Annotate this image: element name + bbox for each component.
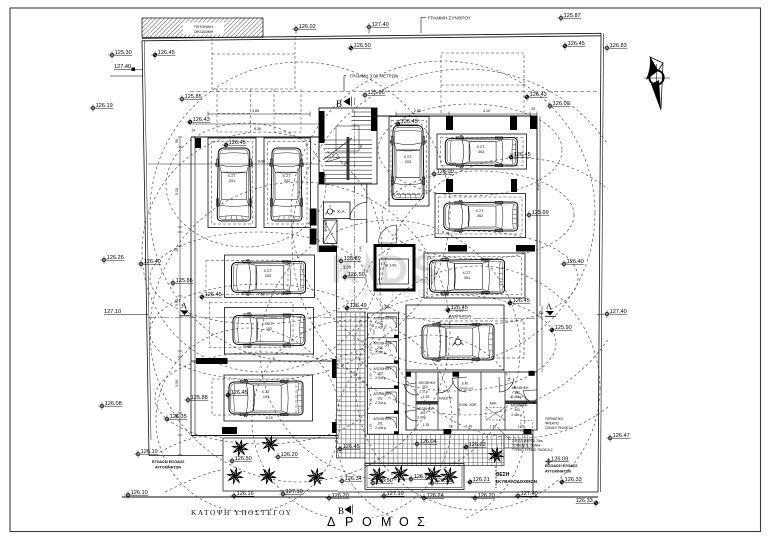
svg-text:201: 201 — [229, 179, 235, 183]
svg-text:202: 202 — [377, 321, 383, 325]
svg-text:Σ: Σ — [417, 515, 425, 529]
svg-text:24: 24 — [192, 129, 196, 133]
svg-text:6.15: 6.15 — [266, 416, 273, 420]
svg-text:101: 101 — [377, 422, 383, 426]
svg-text:2.43τ.μ.: 2.43τ.μ. — [375, 326, 387, 330]
svg-text:2.85: 2.85 — [414, 109, 421, 113]
svg-text:102: 102 — [266, 327, 272, 331]
svg-text:ΣΧΕΔΙΟ 7540007-4: ΣΧΕΔΙΟ 7540007-4 — [545, 426, 573, 430]
svg-text:2.10: 2.10 — [457, 408, 461, 414]
svg-text:Χ.ΣΤ.: Χ.ΣΤ. — [476, 209, 485, 213]
svg-text:1.20: 1.20 — [369, 348, 373, 354]
svg-text:1.35: 1.35 — [490, 425, 497, 429]
svg-text:2.48τ.μ.: 2.48τ.μ. — [511, 395, 523, 399]
svg-text:1.20: 1.20 — [369, 398, 373, 404]
svg-text:1.25: 1.25 — [518, 425, 525, 429]
svg-text:4.10: 4.10 — [483, 109, 490, 113]
svg-text:Χ.ΣΤ.: Χ.ΣΤ. — [264, 269, 273, 273]
svg-text:Χ.ΣΤ.: Χ.ΣΤ. — [265, 322, 274, 326]
svg-text:103: 103 — [265, 274, 271, 278]
svg-text:301: 301 — [464, 276, 470, 280]
svg-text:1.20: 1.20 — [369, 323, 373, 329]
svg-text:A: A — [181, 301, 187, 310]
svg-text:Χ.ΣΤ.: Χ.ΣΤ. — [228, 174, 237, 178]
svg-text:ΘΕΣΗ: ΘΕΣΗ — [496, 472, 510, 478]
svg-text:Ο: Ο — [362, 515, 372, 529]
svg-text:ΤΣΙΜΕΝΤΟ, ΤΑΙΝΙΑ: ΤΣΙΜΕΝΤΟ, ΤΑΙΝΙΑ — [512, 444, 541, 448]
svg-text:50: 50 — [175, 139, 179, 143]
svg-text:6.20: 6.20 — [536, 183, 540, 190]
svg-text:2.45: 2.45 — [341, 161, 348, 165]
svg-text:50: 50 — [359, 144, 363, 148]
svg-text:1.40: 1.40 — [466, 425, 473, 429]
svg-text:2.3τ.μ.: 2.3τ.μ. — [419, 390, 429, 394]
svg-text:Ρ: Ρ — [345, 515, 353, 529]
svg-text:.70: .70 — [448, 425, 453, 429]
svg-text:B: B — [336, 99, 342, 109]
svg-text:ΟΙΚΟΔΟΜΗ: ΟΙΚΟΔΟΜΗ — [194, 30, 214, 34]
svg-text:2.34τ.μ.: 2.34τ.μ. — [375, 350, 387, 354]
svg-text:ΤΕΡΜΑΤΙΚΟ: ΤΕΡΜΑΤΙΚΟ — [545, 417, 564, 421]
svg-text:5.25: 5.25 — [175, 188, 179, 195]
svg-text:ΓΡΑΜΜΗ ΣΥΝΟΡΟΥ: ΓΡΑΜΜΗ ΣΥΝΟΡΟΥ — [428, 16, 471, 21]
svg-text:1.80: 1.80 — [343, 265, 352, 270]
svg-text:6.35: 6.35 — [539, 311, 543, 318]
svg-text:ΣΚΥΒΑΛΟΔΟΧΕΙΩΝ: ΣΚΥΒΑΛΟΔΟΧΕΙΩΝ — [496, 479, 537, 484]
svg-text:6.36: 6.36 — [254, 127, 261, 131]
svg-text:302: 302 — [477, 214, 483, 218]
svg-text:2 Φ110, ΒΑΘΟΣ 75εκ.: 2 Φ110, ΒΑΘΟΣ 75εκ. — [512, 439, 544, 443]
svg-text:Χ.ΣΤ.: Χ.ΣΤ. — [404, 155, 413, 159]
svg-text:ΕΙΣΟΔΟΣ/ ΕΞΟΔΟΣ: ΕΙΣΟΔΟΣ/ ΕΞΟΔΟΣ — [545, 464, 578, 468]
svg-text:1.25: 1.25 — [423, 423, 430, 427]
svg-text:303: 303 — [514, 408, 520, 412]
svg-text:303: 303 — [478, 150, 484, 154]
svg-text:7.50: 7.50 — [258, 293, 265, 297]
svg-text:ΓΕΙΤΟΝΙΚΗ: ΓΕΙΤΟΝΙΚΗ — [194, 25, 213, 29]
svg-text:ΑΝΑΠΗΡΩΝ: ΑΝΑΠΗΡΩΝ — [448, 314, 472, 319]
svg-text:Χ.Α.: Χ.Α. — [337, 209, 346, 214]
svg-text:202: 202 — [284, 179, 290, 183]
svg-text:102: 102 — [377, 397, 383, 401]
svg-text:203: 203 — [422, 385, 428, 389]
svg-text:Χ.ΣΤ.: Χ.ΣΤ. — [463, 271, 472, 275]
svg-text:ΦΡΕΝΟ: ΦΡΕΝΟ — [324, 220, 328, 232]
svg-text:2.4τ.μ.: 2.4τ.μ. — [417, 416, 427, 420]
svg-text:Χ.ΣΤ.: Χ.ΣΤ. — [477, 145, 486, 149]
svg-text:301: 301 — [420, 411, 426, 415]
svg-text:Θ 1.90: Θ 1.90 — [385, 264, 396, 268]
svg-text:ΑΥΤΟΚΙΝΗΤΩΝ: ΑΥΤΟΚΙΝΗΤΩΝ — [545, 470, 571, 474]
svg-text:ΗΛΕΚΤΡ.: ΗΛΕΚΤΡ. — [439, 397, 453, 401]
svg-text:25: 25 — [531, 107, 535, 111]
svg-text:ΓΡΑΜΜΗ 3.00 ΜΕΤΡΩΝ: ΓΡΑΜΜΗ 3.00 ΜΕΤΡΩΝ — [350, 74, 398, 79]
svg-text:1.20: 1.20 — [369, 373, 373, 379]
svg-text:127.10: 127.10 — [104, 309, 121, 315]
svg-text:3.85: 3.85 — [252, 109, 259, 113]
svg-text:101: 101 — [263, 395, 269, 399]
svg-text:ΤΥΠΙΚΟ ΣΧΕΔΙΟ 7540010-2: ΤΥΠΙΚΟ ΣΧΕΔΙΟ 7540010-2 — [512, 448, 553, 452]
svg-text:Μ: Μ — [381, 515, 391, 529]
svg-text:201: 201 — [377, 346, 383, 350]
svg-text:5.85: 5.85 — [175, 299, 179, 306]
svg-text:1.20: 1.20 — [369, 423, 373, 429]
svg-text:2.43τ.μ.: 2.43τ.μ. — [375, 426, 387, 430]
svg-text:1.80: 1.80 — [381, 305, 390, 310]
svg-text:ΚΑΤΟΨΗ ΥΠΟΣΤΕΓΟΥ: ΚΑΤΟΨΗ ΥΠΟΣΤΕΓΟΥ — [191, 508, 292, 517]
svg-text:6.56: 6.56 — [258, 160, 265, 164]
svg-text:203: 203 — [405, 160, 411, 164]
svg-text:3.30: 3.30 — [175, 380, 179, 387]
svg-text:20: 20 — [175, 248, 179, 252]
svg-text:ΕΞΟΔΟΣ/ ΕΙΣΟΔΟΣ: ΕΞΟΔΟΣ/ ΕΙΣΟΔΟΣ — [152, 460, 185, 464]
svg-text:Δ.Μ.: Δ.Μ. — [462, 382, 469, 386]
svg-text:Χ.ΣΤ.: Χ.ΣΤ. — [262, 390, 271, 394]
svg-text:1.25: 1.25 — [423, 395, 430, 399]
svg-text:ΦΡΕΑΤΙΟ: ΦΡΕΑΤΙΟ — [545, 422, 560, 426]
svg-text:A: A — [546, 302, 552, 311]
svg-text:Χ.ΣΤ.: Χ.ΣΤ. — [283, 174, 292, 178]
svg-text:3.45: 3.45 — [359, 246, 363, 252]
svg-text:2.48τ.μ.: 2.48τ.μ. — [511, 413, 523, 417]
svg-text:Δ: Δ — [327, 515, 335, 529]
svg-text:7540010-5: 7540010-5 — [459, 387, 474, 391]
svg-text:302: 302 — [514, 391, 520, 395]
svg-text:103: 103 — [377, 371, 383, 375]
svg-text:B: B — [338, 506, 344, 516]
svg-text:2.34τ.μ.: 2.34τ.μ. — [375, 376, 387, 380]
svg-text:Ο: Ο — [399, 515, 409, 529]
svg-text:8.45: 8.45 — [449, 162, 456, 166]
svg-text:ΑΗΚ: ΑΗΚ — [490, 402, 498, 406]
svg-text:ΑΥΤΟΚΙΝΗΤΩΝ: ΑΥΤΟΚΙΝΗΤΩΝ — [155, 466, 181, 470]
svg-text:127.40: 127.40 — [114, 64, 131, 70]
svg-text:ΑΠΟΘΗΚΗ: ΑΠΟΘΗΚΗ — [512, 386, 529, 390]
svg-text:1.63: 1.63 — [507, 378, 511, 384]
svg-text:ΚΟΙΝ. ΧΩΡ.: ΚΟΙΝ. ΧΩΡ. — [459, 403, 477, 407]
svg-text:2.34τ.μ.: 2.34τ.μ. — [375, 401, 387, 405]
svg-text:ΑΠΟΘΗΚΗ: ΑΠΟΘΗΚΗ — [511, 404, 528, 408]
svg-text:9.00: 9.00 — [441, 293, 448, 297]
